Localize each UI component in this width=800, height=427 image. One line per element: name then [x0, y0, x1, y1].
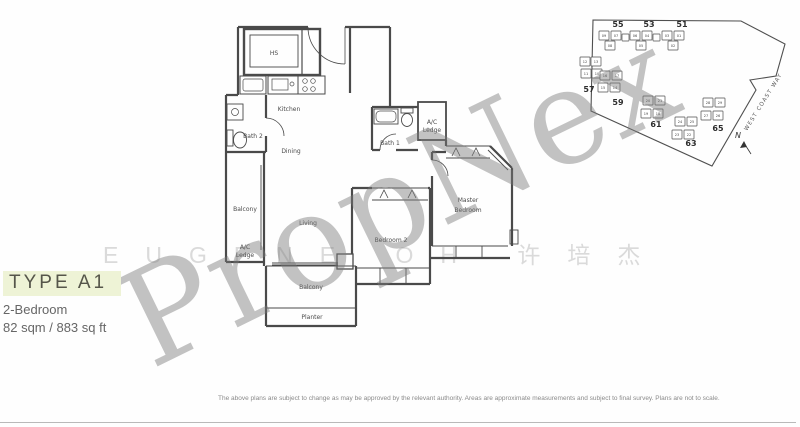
- unit-number: 29: [718, 101, 722, 105]
- unit-type-title: TYPE A1: [3, 271, 121, 296]
- room-label-bath2: Bath 2: [243, 133, 263, 140]
- unit-number: 27: [704, 114, 708, 118]
- room-label-dining: Dining: [281, 148, 301, 155]
- page-edge-line: [0, 422, 796, 423]
- north-arrow: N: [735, 131, 751, 154]
- unit-number: 01: [677, 34, 681, 38]
- block-label-65: 65: [712, 124, 724, 133]
- unit-number: 28: [706, 101, 710, 105]
- room-label-hs: HS: [270, 50, 279, 57]
- north-label: N: [735, 131, 741, 140]
- unit-number: 02: [671, 44, 675, 48]
- kitchen-fixtures: [240, 29, 325, 94]
- unit-area: 82 sqm / 883 sq ft: [3, 320, 121, 335]
- disclaimer-text: The above plans are subject to change as…: [218, 395, 720, 402]
- unit-number: 26: [716, 114, 720, 118]
- unit-type-block: TYPE A1 2-Bedroom 82 sqm / 883 sq ft: [3, 271, 121, 335]
- room-label-kitchen: Kitchen: [278, 106, 301, 113]
- block-label-51: 51: [676, 20, 688, 29]
- street-label: WEST COAST WAY: [744, 72, 784, 132]
- unit-bedroom-count: 2-Bedroom: [3, 302, 121, 317]
- unit-number: 03: [665, 34, 669, 38]
